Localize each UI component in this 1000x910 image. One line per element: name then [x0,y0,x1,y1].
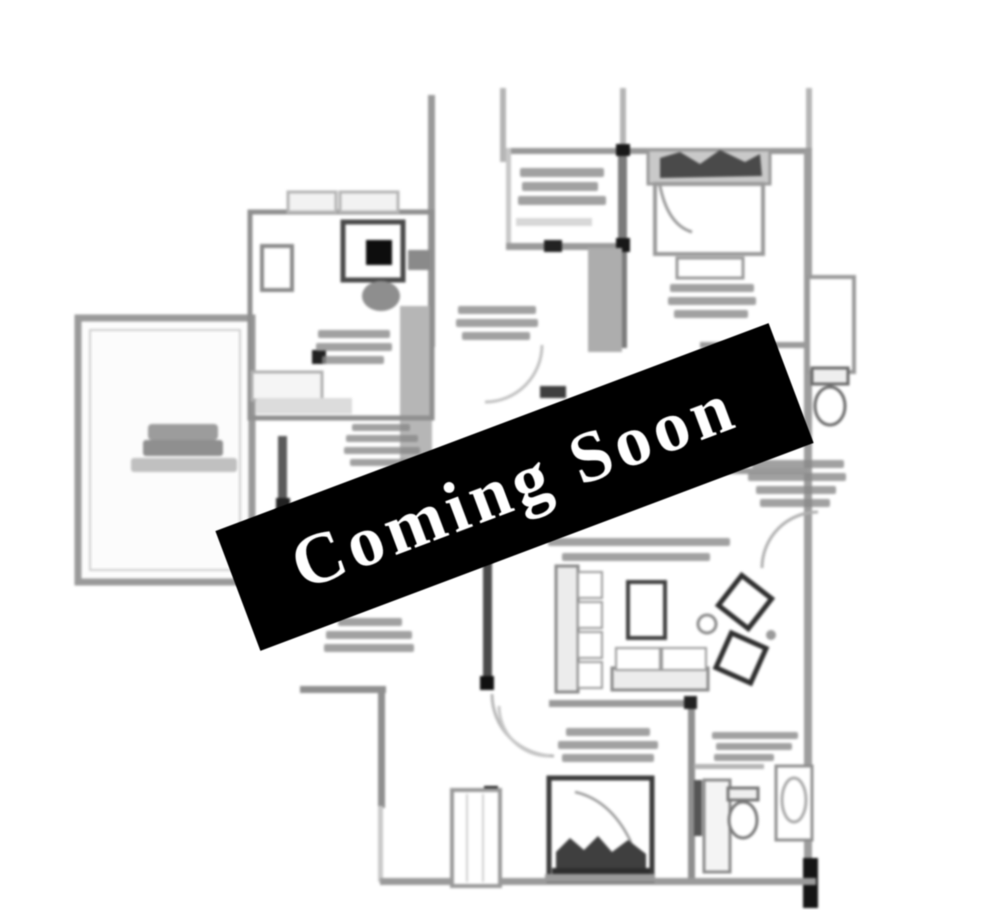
bed-icon [648,150,770,254]
sofa-icon [556,566,602,692]
wall [378,686,385,808]
wall-junction [480,676,494,690]
room-label [748,460,846,507]
armchair-icon [718,575,771,628]
wall [300,686,386,693]
bench-icon [677,258,743,278]
coming-soon-floorplan-image: Coming Soon [0,0,1000,910]
sink-icon [362,281,400,311]
wall-dark-segment [540,386,566,398]
wall-stub [500,88,506,162]
sink-icon [776,766,812,840]
room-label [712,732,798,761]
balcony-right-outline [808,277,854,372]
sofa-icon [612,648,708,690]
room-label [324,618,414,652]
wall-dark-segment [694,780,702,836]
living-room [556,566,776,692]
counter-icon [408,250,430,270]
armchair-icon [716,633,766,683]
plant-icon [766,630,776,640]
room-label [548,538,730,561]
toilet-icon [728,788,758,838]
room-label [456,306,538,340]
wall [694,764,764,769]
wall-junction [616,144,630,156]
bathroom-right [812,368,848,425]
wall-junction [684,696,697,709]
wall-stub [620,88,626,150]
wall-dark-segment [278,436,287,508]
room-label [668,284,756,318]
appliance-burner-icon [366,240,392,265]
wall [506,148,511,244]
wardrobe-icon [704,780,730,872]
wall [549,700,691,707]
wall-junction [544,240,562,252]
cabinet-icon [288,192,336,212]
counter-icon [252,372,322,400]
toilet-icon [812,368,848,425]
room-label [518,168,606,205]
stool-icon [698,615,716,633]
room-label [316,330,392,364]
wall-stub [806,88,812,152]
coffee-table-icon [628,582,665,638]
door-arc [499,706,549,756]
bed-icon [545,778,655,882]
cabinet-icon [340,192,398,212]
window [262,246,292,290]
door-arc [485,345,542,402]
wall [688,700,695,882]
counter-icon [256,398,352,414]
window [516,218,592,226]
window-bay [452,790,500,886]
shaft [588,248,622,352]
room-label [558,728,658,762]
wall [378,806,383,882]
wall-dark-segment [483,560,492,688]
